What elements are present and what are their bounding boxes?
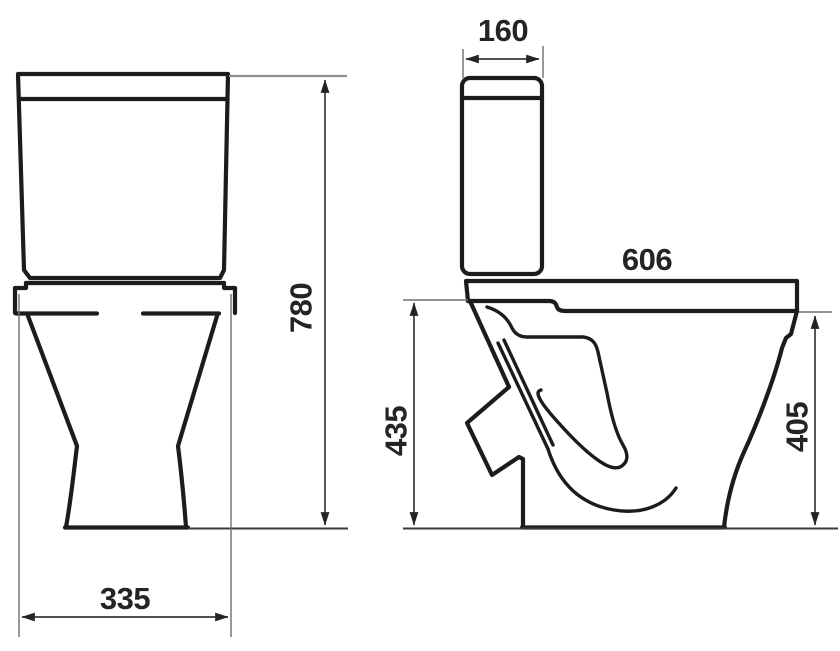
toilet-dimension-drawing: 335 780 — [0, 0, 840, 651]
side-rim-bottom-line — [468, 301, 797, 311]
side-flush-channel-line-1 — [498, 343, 548, 449]
side-tank-outline — [462, 78, 542, 274]
side-outlet-stub — [467, 387, 523, 527]
side-view — [403, 78, 838, 529]
front-pedestal-right-edge — [178, 316, 217, 527]
side-trap-sweep — [548, 449, 676, 511]
dim-tank-depth-label: 160 — [478, 13, 528, 48]
side-flush-channel-line-2 — [504, 340, 553, 445]
dim-front-height-label: 780 — [284, 283, 319, 333]
dim-height-back-label: 435 — [379, 406, 414, 456]
dim-front-width: 335 — [19, 294, 231, 637]
front-tank-outline — [18, 74, 228, 278]
front-rim-left-step — [15, 283, 26, 313]
dim-height-front: 405 — [780, 312, 833, 525]
dim-tank-depth: 160 — [463, 13, 543, 78]
drawing-canvas: 335 780 — [0, 0, 840, 651]
dim-height-front-label: 405 — [780, 402, 815, 452]
dim-height-back: 435 — [379, 300, 469, 525]
dim-overall-depth: 606 — [622, 242, 672, 277]
side-rim-outline — [466, 281, 797, 311]
dim-front-height: 780 — [229, 76, 347, 525]
dim-overall-depth-label: 606 — [622, 242, 672, 277]
front-rim-right-step — [224, 283, 235, 313]
dim-front-width-label: 335 — [100, 581, 150, 616]
front-pedestal-left-edge — [28, 316, 77, 527]
